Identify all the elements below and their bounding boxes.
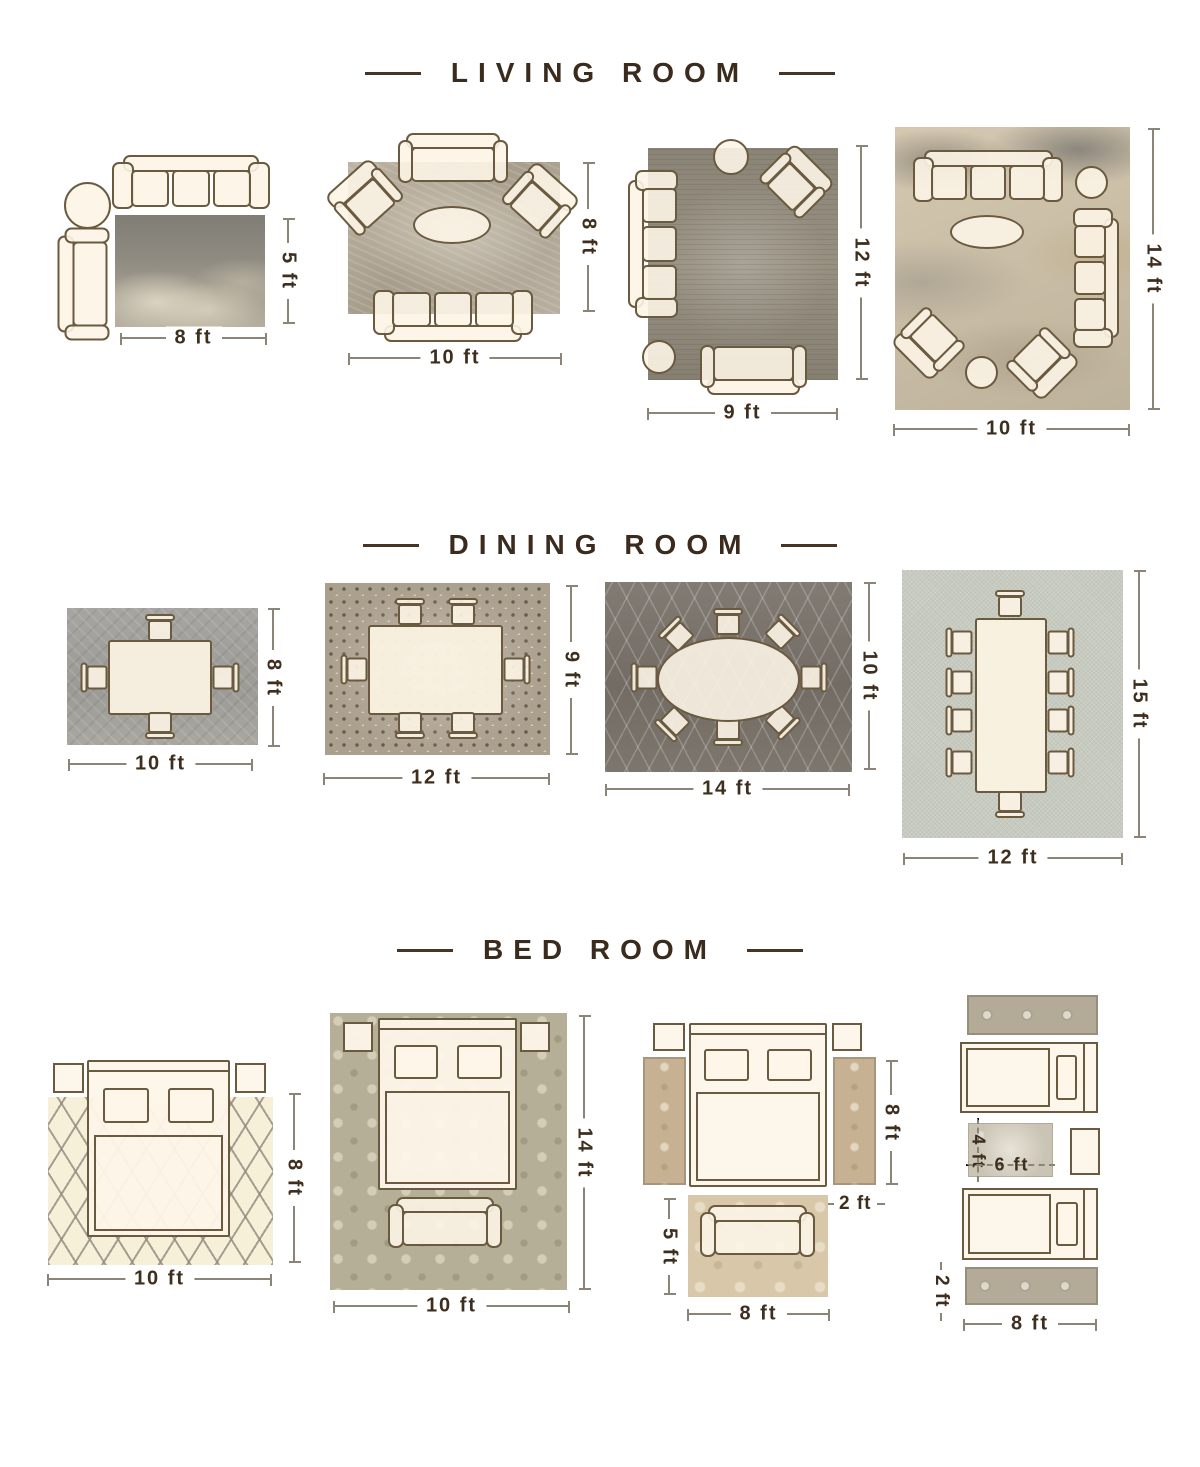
- round-side-table: [1075, 166, 1108, 199]
- bed: [87, 1060, 230, 1237]
- dimension-label: 8 ft: [166, 327, 222, 350]
- nightstand: [343, 1022, 373, 1052]
- dimension-width: 12 ft: [903, 857, 1123, 859]
- dining-chair: [397, 712, 423, 739]
- dining-chair: [997, 590, 1023, 617]
- dimension-label: 12 ft: [978, 847, 1047, 870]
- dimension-width: 10 ft: [348, 357, 562, 359]
- dining-chair: [81, 665, 108, 691]
- dining-chair: [213, 665, 240, 691]
- section-title: BED ROOM: [483, 934, 717, 966]
- dining-chair: [1048, 708, 1075, 734]
- oval-coffee-table: [413, 206, 491, 244]
- dimension-width: 8 ft: [963, 1323, 1097, 1325]
- dining-chair: [715, 608, 741, 635]
- dimension-height: 14 ft: [1152, 128, 1154, 410]
- dimension-height: 5 ft: [668, 1198, 670, 1295]
- dimension-label: 9 ft: [560, 642, 583, 698]
- dimension-label: 8 ft: [731, 1303, 787, 1326]
- dimension-width: 8 ft: [687, 1313, 830, 1315]
- sofa-three-seat: [913, 150, 1063, 202]
- dimension-label: 14 ft: [693, 778, 762, 801]
- sofa-three-seat: [1073, 208, 1119, 348]
- dimension-width: 12 ft: [323, 777, 550, 779]
- nightstand: [53, 1063, 84, 1093]
- dining-chair: [450, 712, 476, 739]
- accent-rug-height-dim: 4 ft: [977, 1118, 979, 1182]
- dimension-label: 8 ft: [880, 1095, 903, 1151]
- dimension-width: 10 ft: [68, 763, 253, 765]
- nightstand: [520, 1022, 550, 1052]
- runner-width-note: 2 ft: [826, 1193, 885, 1215]
- sofa-three-seat: [628, 170, 678, 318]
- bed: [689, 1023, 827, 1187]
- dimension-label: 10 ft: [126, 753, 195, 776]
- dining-chair: [341, 657, 368, 683]
- dimension-width: 10 ft: [47, 1278, 272, 1280]
- dimension-label: 2 ft: [839, 1193, 872, 1215]
- round-side-table: [713, 139, 749, 175]
- dimension-label: 2 ft: [930, 1275, 952, 1308]
- runner-rug: [643, 1057, 686, 1185]
- dimension-label: 10 ft: [420, 347, 489, 370]
- twin-bed: [960, 1042, 1098, 1113]
- round-side-table: [965, 356, 998, 389]
- dimension-height: 8 ft: [890, 1060, 892, 1185]
- dining-chair: [715, 719, 741, 746]
- bed: [378, 1018, 517, 1190]
- title-dash: [363, 544, 419, 547]
- dimension-label: 10 ft: [858, 641, 881, 710]
- sofa-three-seat: [112, 155, 270, 209]
- dining-chair: [801, 665, 828, 691]
- dimension-height: 10 ft: [868, 582, 870, 770]
- dimension-height: 9 ft: [570, 585, 572, 755]
- dining-chair: [1048, 630, 1075, 656]
- dimension-label: 12 ft: [402, 767, 471, 790]
- dining-chair: [147, 712, 173, 739]
- dimension-label: 8 ft: [1002, 1313, 1058, 1336]
- dimension-height: 8 ft: [587, 162, 589, 312]
- rug-size-guide: LIVING ROOM 8 ft 5 ft 10 ft 8 ft: [0, 0, 1200, 1467]
- dimension-width: 9 ft: [647, 412, 838, 414]
- dining-chair: [1048, 750, 1075, 776]
- nightstand: [235, 1063, 266, 1093]
- dimension-label: 9 ft: [715, 402, 771, 425]
- twin-bed: [962, 1188, 1098, 1260]
- dimension-height: 8 ft: [293, 1093, 295, 1263]
- title-dash: [779, 72, 835, 75]
- dining-chair: [997, 791, 1023, 818]
- round-side-table: [642, 340, 676, 374]
- dining-chair: [946, 750, 973, 776]
- nightstand: [1070, 1128, 1100, 1175]
- oval-dining-table: [657, 637, 800, 722]
- dimension-label: 14 ft: [573, 1118, 596, 1187]
- title-dash: [781, 544, 837, 547]
- dining-table: [108, 640, 212, 715]
- dining-chair: [450, 598, 476, 625]
- dimension-label: 5 ft: [658, 1219, 681, 1275]
- section-dining-room-title: DINING ROOM: [0, 529, 1200, 561]
- dimension-width: 14 ft: [605, 788, 850, 790]
- section-living-room-title: LIVING ROOM: [0, 57, 1200, 89]
- dimension-height: 8 ft: [272, 608, 274, 747]
- dimension-label: 14 ft: [1142, 234, 1165, 303]
- dimension-label: 10 ft: [125, 1268, 194, 1291]
- runner-height-note: 2 ft: [930, 1262, 952, 1321]
- loveseat: [700, 1205, 815, 1257]
- dining-chair: [946, 708, 973, 734]
- dimension-label: 8 ft: [262, 650, 285, 706]
- accent-rug-width-dim: 6 ft: [966, 1164, 1055, 1166]
- dining-chair: [946, 670, 973, 696]
- dimension-label: 10 ft: [977, 418, 1046, 441]
- loveseat: [58, 228, 110, 341]
- dimension-label: 10 ft: [417, 1295, 486, 1318]
- dimension-label: 15 ft: [1128, 669, 1151, 738]
- dining-table: [975, 618, 1047, 793]
- section-bed-room-title: BED ROOM: [0, 934, 1200, 966]
- title-dash: [365, 72, 421, 75]
- loveseat: [398, 133, 508, 183]
- dimension-label: 8 ft: [283, 1150, 306, 1206]
- dining-chair: [397, 598, 423, 625]
- dimension-label: 6 ft: [986, 1155, 1039, 1176]
- title-dash: [397, 949, 453, 952]
- loveseat: [700, 345, 807, 395]
- runner-rug: [967, 995, 1098, 1035]
- round-side-table: [64, 182, 111, 229]
- dining-chair: [946, 630, 973, 656]
- bench: [388, 1197, 502, 1248]
- dining-chair: [1048, 670, 1075, 696]
- dimension-label: 5 ft: [277, 243, 300, 299]
- title-dash: [747, 949, 803, 952]
- dimension-height: 12 ft: [860, 145, 862, 380]
- dimension-width: 10 ft: [333, 1305, 570, 1307]
- nightstand: [832, 1023, 862, 1051]
- dining-chair: [631, 665, 658, 691]
- dimension-width: 8 ft: [120, 337, 267, 339]
- runner-rug: [965, 1267, 1098, 1305]
- dimension-width: 10 ft: [893, 428, 1130, 430]
- runner-rug: [833, 1057, 876, 1185]
- oval-coffee-table: [950, 215, 1024, 249]
- dimension-height: 14 ft: [583, 1015, 585, 1290]
- dimension-height: 15 ft: [1138, 570, 1140, 838]
- rug-8x5: [115, 215, 265, 327]
- dining-table: [368, 625, 503, 715]
- section-title: DINING ROOM: [449, 529, 752, 561]
- dining-chair: [504, 657, 531, 683]
- nightstand: [653, 1023, 685, 1051]
- dining-chair: [147, 614, 173, 641]
- sofa-three-seat: [373, 290, 533, 342]
- dimension-label: 8 ft: [577, 209, 600, 265]
- dimension-label: 12 ft: [850, 228, 873, 297]
- dimension-height: 5 ft: [287, 218, 289, 324]
- section-title: LIVING ROOM: [451, 57, 749, 89]
